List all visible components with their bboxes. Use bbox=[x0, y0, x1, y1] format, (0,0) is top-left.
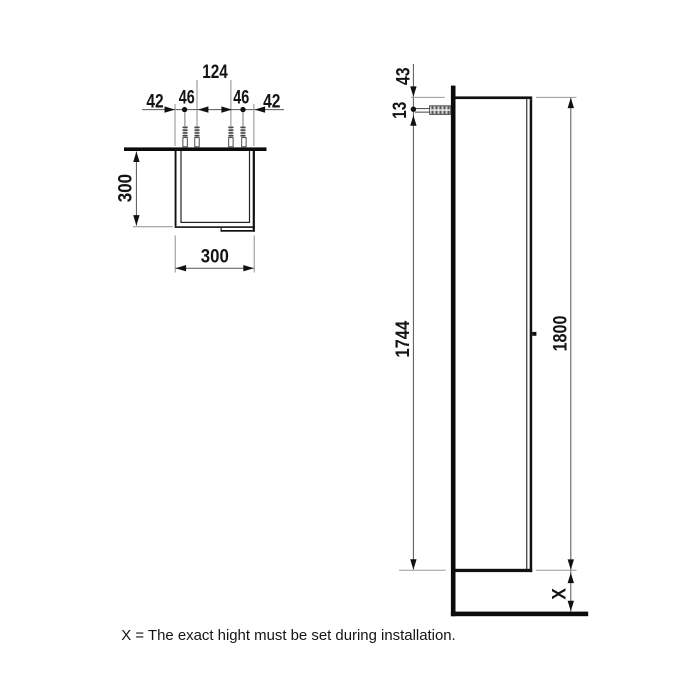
svg-text:1744: 1744 bbox=[393, 321, 414, 358]
svg-text:X = The exact hight must be se: X = The exact hight must be set during i… bbox=[121, 628, 455, 644]
svg-text:42: 42 bbox=[146, 92, 163, 113]
svg-text:43: 43 bbox=[393, 68, 414, 86]
svg-text:124: 124 bbox=[202, 62, 228, 83]
svg-text:46: 46 bbox=[179, 87, 195, 108]
svg-text:300: 300 bbox=[201, 247, 229, 268]
svg-text:X: X bbox=[550, 588, 571, 600]
svg-text:42: 42 bbox=[263, 92, 280, 113]
svg-text:46: 46 bbox=[233, 87, 249, 108]
svg-text:1800: 1800 bbox=[551, 316, 572, 352]
svg-text:300: 300 bbox=[115, 174, 136, 202]
svg-text:13: 13 bbox=[390, 102, 411, 119]
